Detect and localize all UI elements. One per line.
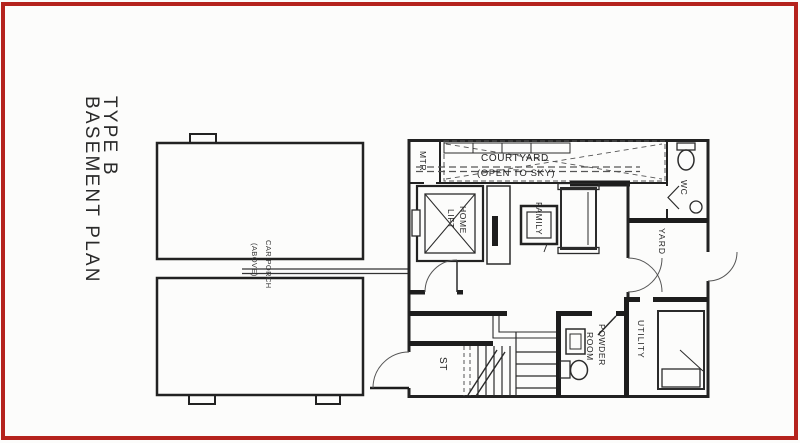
yard-door-arc-2 xyxy=(628,258,662,292)
powder-sink xyxy=(570,334,581,349)
powder-vanity xyxy=(566,329,585,354)
tv-screen xyxy=(492,216,498,246)
utility-bed xyxy=(658,311,704,389)
tv-console xyxy=(487,186,510,264)
bed-pillow xyxy=(662,369,700,387)
powder-west-wall xyxy=(556,311,561,397)
courtyard-label-2: (OPEN TO SKY) xyxy=(477,168,555,179)
utility-north-wall-b xyxy=(653,297,708,302)
utility-north-wall-a xyxy=(628,297,640,302)
powder-label-2: ROOM xyxy=(585,332,595,361)
stair-break-dashes xyxy=(464,346,470,396)
wc-south-wall xyxy=(628,218,708,223)
planter-dividers xyxy=(473,143,531,153)
stairs-label: ST xyxy=(437,357,448,371)
wc-basin xyxy=(690,201,702,213)
left-block-label-2: (ABOVE) xyxy=(250,243,259,277)
wc-door-leaf xyxy=(668,186,679,209)
column-tab-bottom-left xyxy=(189,395,215,404)
lift-door-slot xyxy=(412,210,420,236)
yard-label: YARD xyxy=(657,228,667,255)
floor-plan-page: TYPE B BASEMENT PLAN CAR PORCH (ABOVE) M… xyxy=(0,0,800,443)
powder-cistern xyxy=(560,361,570,378)
main-floor-plan: MTR COURTYARD (OPEN TO SKY) WC xyxy=(370,141,737,398)
hall-wall-stub xyxy=(457,290,463,295)
powder-north-wall-a xyxy=(558,311,592,316)
courtyard-planter xyxy=(444,143,570,153)
powder-toilet xyxy=(571,361,588,380)
lift-label-2: LIFT xyxy=(446,209,456,229)
lift-label-1: HOME xyxy=(458,206,468,234)
courtyard-label-1: COURTYARD xyxy=(481,153,549,164)
bed-fold-line xyxy=(680,350,703,371)
hall-door-arc xyxy=(425,260,457,292)
powder-label-1: POWDER xyxy=(597,324,607,366)
room-yard: YARD xyxy=(628,183,737,299)
entry-door xyxy=(370,352,409,388)
corridor-wall xyxy=(409,311,507,316)
left-block-lower-slab xyxy=(157,278,363,395)
yard-door-arc-1 xyxy=(628,258,662,292)
column-tab-top xyxy=(190,134,216,143)
wc-cistern xyxy=(677,143,695,150)
mtr-label: MTR xyxy=(418,151,428,171)
entry-door-arc xyxy=(373,352,409,388)
stair-treads-upper-flight xyxy=(516,352,556,388)
room-mtr: MTR xyxy=(410,141,440,183)
family-label: FAMILY xyxy=(534,202,544,235)
powder-room: POWDER ROOM xyxy=(556,311,626,397)
wc-toilet xyxy=(678,150,694,170)
stair-landing-steps xyxy=(493,316,556,338)
wc-label: WC xyxy=(679,180,689,195)
home-lift: HOME LIFT xyxy=(412,186,483,261)
stair-north-wall xyxy=(409,341,493,346)
utility-label: UTILITY xyxy=(636,320,646,359)
sofa xyxy=(558,184,599,254)
left-block-plan: CAR PORCH (ABOVE) xyxy=(157,134,409,404)
left-block-upper-slab xyxy=(157,143,363,259)
courtyard: COURTYARD (OPEN TO SKY) xyxy=(416,141,667,187)
hall-wall-left xyxy=(409,290,425,295)
yard-gate-arc xyxy=(708,252,737,281)
utility-west-wall xyxy=(624,297,629,397)
staircase: ST xyxy=(409,311,556,396)
column-tab-bottom-right xyxy=(316,395,340,404)
left-block-label-1: CAR PORCH xyxy=(264,240,273,289)
plan-title: TYPE B BASEMENT PLAN xyxy=(81,96,120,284)
utility-room: UTILITY xyxy=(624,297,708,397)
title-line-2: BASEMENT PLAN xyxy=(81,96,102,284)
